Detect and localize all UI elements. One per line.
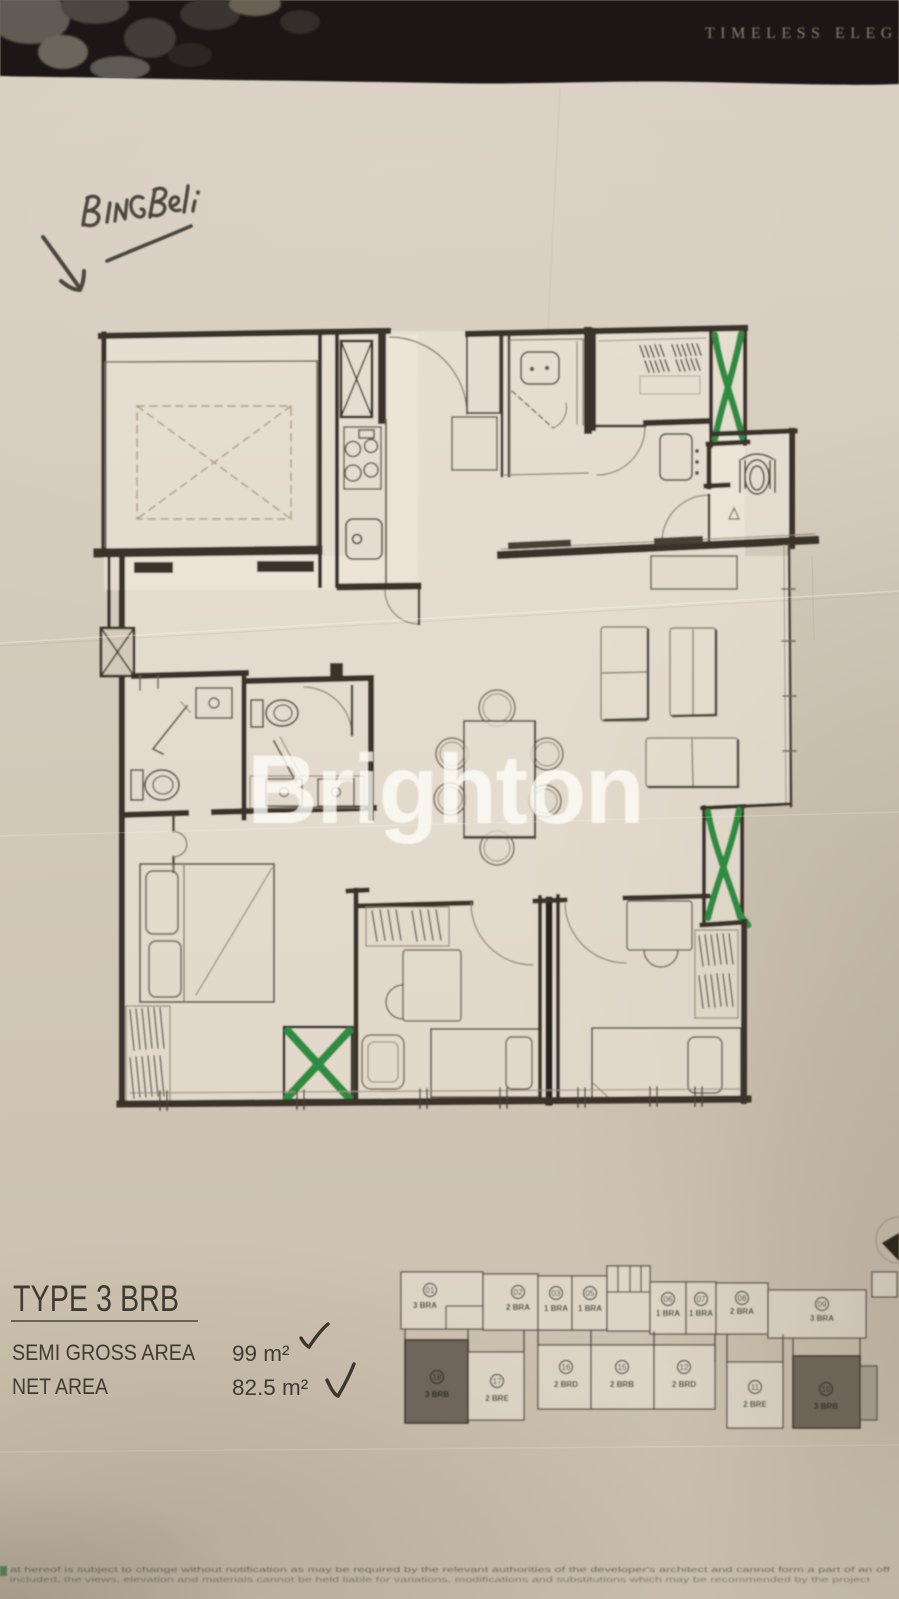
svg-text:TIMELESS ELEGA: TIMELESS ELEGA — [705, 25, 899, 42]
svg-text:02: 02 — [514, 1288, 523, 1297]
svg-text:18: 18 — [433, 1373, 442, 1382]
svg-text:1 BRA: 1 BRA — [544, 1304, 568, 1313]
svg-text:06: 06 — [664, 1295, 673, 1304]
svg-text:3 BRB: 3 BRB — [425, 1390, 449, 1399]
svg-text:2 BRD: 2 BRD — [554, 1380, 578, 1389]
svg-text:05: 05 — [586, 1289, 595, 1298]
svg-text:99 m²: 99 m² — [232, 1341, 290, 1366]
svg-text:3 BRA: 3 BRA — [413, 1301, 437, 1310]
svg-text:3 BRB: 3 BRB — [814, 1402, 838, 1411]
svg-text:07: 07 — [697, 1295, 706, 1304]
svg-text:included, the views, elevation: included, the views, elevation and mater… — [10, 1577, 870, 1584]
svg-text:09: 09 — [818, 1300, 827, 1309]
svg-text:1 BRA: 1 BRA — [689, 1309, 713, 1318]
svg-text:03: 03 — [552, 1289, 561, 1298]
svg-text:2 BRE: 2 BRE — [485, 1394, 509, 1403]
svg-text:01: 01 — [426, 1286, 435, 1295]
svg-text:08: 08 — [738, 1294, 747, 1303]
svg-text:2 BRA: 2 BRA — [730, 1307, 754, 1316]
svg-text:2 BRA: 2 BRA — [506, 1303, 530, 1312]
svg-text:1 BRA: 1 BRA — [578, 1304, 602, 1313]
svg-text:12: 12 — [680, 1363, 689, 1372]
svg-text:10: 10 — [822, 1385, 831, 1394]
svg-text:2 BRD: 2 BRD — [672, 1380, 696, 1389]
svg-text:11: 11 — [751, 1383, 760, 1392]
svg-text:NET AREA: NET AREA — [12, 1374, 108, 1399]
svg-text:1 BRA: 1 BRA — [656, 1309, 680, 1318]
svg-text:SEMI GROSS AREA: SEMI GROSS AREA — [12, 1340, 195, 1365]
svg-text:17: 17 — [493, 1377, 502, 1386]
svg-text:3 BRA: 3 BRA — [810, 1314, 834, 1323]
svg-text:2 BRB: 2 BRB — [610, 1380, 634, 1389]
svg-text:16: 16 — [562, 1363, 571, 1372]
svg-text:15: 15 — [618, 1363, 627, 1372]
svg-text:82.5 m²: 82.5 m² — [232, 1375, 309, 1400]
svg-text:TYPE 3 BRB: TYPE 3 BRB — [13, 1278, 179, 1319]
svg-text:at hereof is subject to change: at hereof is subject to change without n… — [10, 1567, 890, 1574]
svg-text:2 BRE: 2 BRE — [743, 1400, 767, 1409]
